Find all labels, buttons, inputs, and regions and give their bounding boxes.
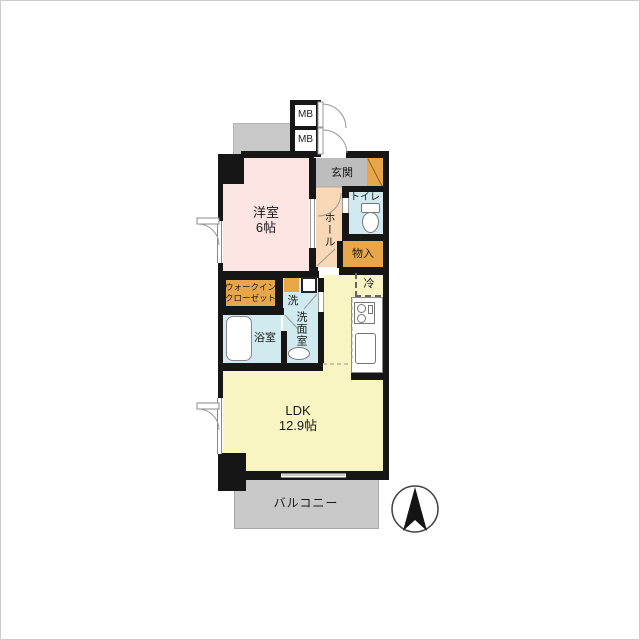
entrance-door-arc-2 bbox=[323, 130, 347, 153]
washroom-label: 洗面室 bbox=[293, 311, 309, 347]
washing-machine-icon bbox=[301, 277, 317, 293]
bathroom-label: 浴室 bbox=[249, 332, 281, 345]
meter-box-2-label: MB bbox=[295, 134, 316, 146]
hall-toilet-wall-b bbox=[342, 213, 349, 241]
western-room-label: 洋室 6帖 bbox=[226, 206, 306, 236]
wic-right-wall bbox=[278, 278, 283, 309]
ldk-label: LDK 12.9帖 bbox=[258, 404, 338, 434]
storage-label: 物入 bbox=[344, 248, 382, 261]
ldk-window-leaf bbox=[197, 403, 219, 409]
right-wall bbox=[383, 151, 389, 479]
bathroom-top-wall bbox=[219, 308, 284, 315]
compass-north-icon bbox=[392, 486, 438, 532]
pillar-top-left bbox=[218, 154, 244, 184]
kitchen-sink-icon bbox=[355, 333, 376, 364]
stove-grill-icon bbox=[368, 305, 373, 314]
western-room-window bbox=[217, 221, 222, 263]
shoe-cabinet bbox=[367, 158, 383, 187]
stove-burner-icon bbox=[357, 314, 366, 323]
toilet-label: トイレ bbox=[348, 192, 382, 204]
bathroom-bottom-wall bbox=[219, 363, 323, 371]
kitchen-bottom-wall bbox=[351, 373, 389, 380]
hall-label: ホール bbox=[321, 212, 337, 248]
western-room-door bbox=[310, 199, 315, 248]
vanity-sink-icon bbox=[288, 347, 310, 360]
stove-burner-icon bbox=[357, 304, 366, 313]
left-wall-b bbox=[218, 263, 223, 398]
ldk-balcony-window bbox=[281, 473, 346, 478]
western-window-leaf bbox=[197, 218, 219, 224]
ldk-size: 12.9帖 bbox=[258, 419, 338, 434]
wic-label-line2: クローゼット bbox=[224, 293, 277, 304]
left-wall-a bbox=[218, 184, 223, 221]
meter-box-1-label: MB bbox=[295, 109, 316, 121]
toilet-storage-wall bbox=[342, 234, 389, 241]
western-window-arc bbox=[198, 224, 219, 245]
pillar-bottom-left bbox=[218, 453, 246, 491]
western-room-size: 6帖 bbox=[226, 221, 306, 236]
bathroom-right-wall bbox=[281, 331, 287, 363]
washer-label: 洗 bbox=[284, 295, 302, 308]
wic-label: ウォークイン クローゼット bbox=[224, 282, 277, 303]
washroom-right-wall-a bbox=[318, 278, 324, 292]
washroom-right-wall-b bbox=[318, 312, 324, 363]
ldk-window-arc bbox=[198, 409, 219, 430]
washroom-door bbox=[318, 292, 324, 312]
entrance-door-arc-1 bbox=[323, 104, 346, 128]
storage-left-wall bbox=[337, 241, 343, 268]
ldk-name: LDK bbox=[258, 404, 338, 419]
wic-entry-floor bbox=[284, 278, 299, 292]
refrigerator-label: 冷 bbox=[361, 278, 377, 291]
ldk-window bbox=[217, 398, 222, 454]
balcony-label: バルコニー bbox=[256, 497, 356, 511]
western-hall-wall-a bbox=[309, 158, 316, 199]
floor-plan: 洋室 6帖 LDK 12.9帖 玄関 ホール トイレ 物入 ウォークイン クロー… bbox=[0, 0, 640, 640]
western-room-name: 洋室 bbox=[226, 206, 306, 221]
entrance-label: 玄関 bbox=[321, 167, 363, 180]
wic-label-line1: ウォークイン bbox=[224, 282, 277, 293]
